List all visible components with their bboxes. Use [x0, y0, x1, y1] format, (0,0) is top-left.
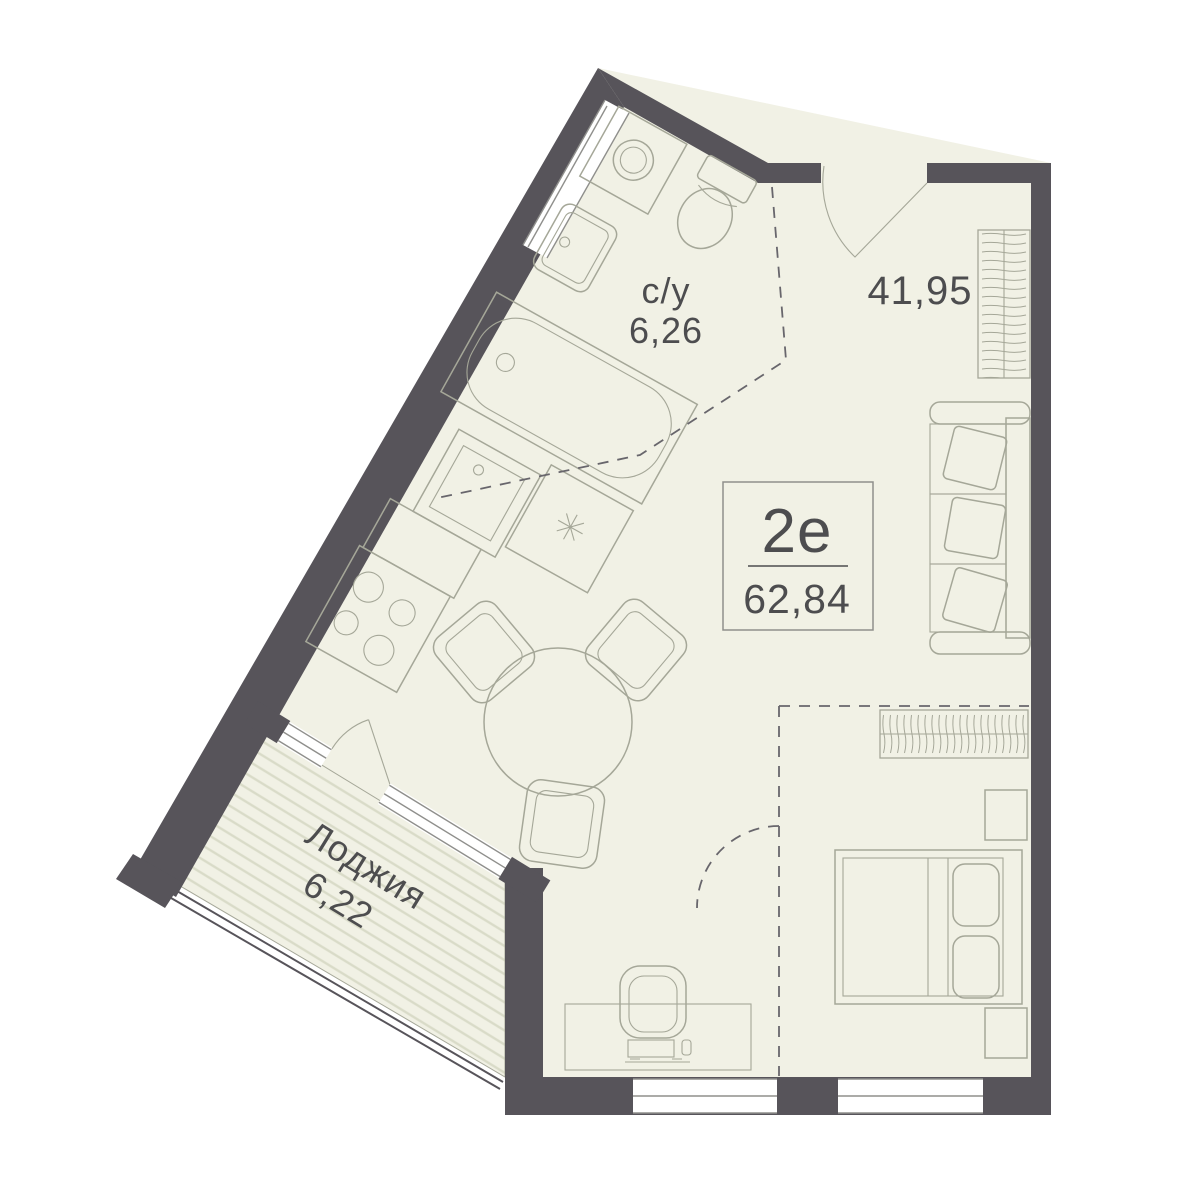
floor-plan-drawing: с/у 6,26 41,95 Лоджия 6,22 2е 62,84: [0, 0, 1181, 1181]
wardrobe: [978, 230, 1030, 378]
main-room-area: 41,95: [867, 269, 972, 313]
unit-area: 62,84: [743, 576, 851, 622]
wardrobe-bedroom: [880, 710, 1028, 758]
floor-plan-page: с/у 6,26 41,95 Лоджия 6,22 2е 62,84: [0, 0, 1181, 1181]
bathroom-area: 6,26: [629, 310, 703, 351]
bathroom-label: с/у: [641, 270, 690, 311]
window-bottom-right: [838, 1079, 983, 1113]
window-bottom-left: [633, 1079, 777, 1113]
unit-type: 2е: [762, 497, 833, 566]
